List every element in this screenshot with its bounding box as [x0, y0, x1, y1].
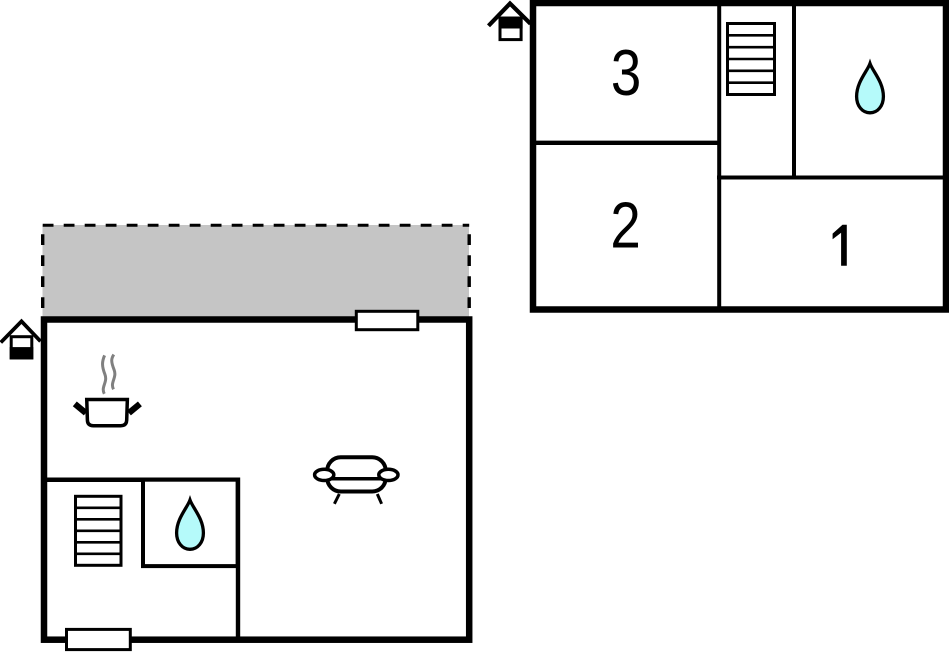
- svg-text:2: 2: [610, 189, 640, 262]
- svg-text:3: 3: [611, 37, 641, 110]
